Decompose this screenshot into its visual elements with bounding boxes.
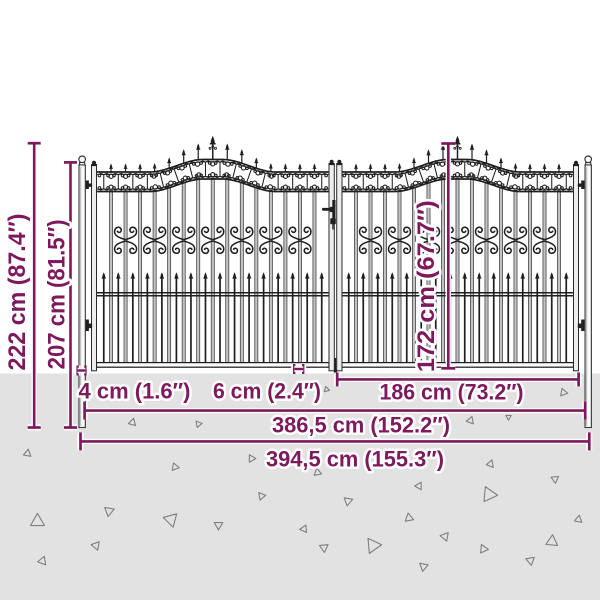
svg-text:386,5 cm (152.2″): 386,5 cm (152.2″) [272, 412, 450, 437]
svg-text:186 cm (73.2″): 186 cm (73.2″) [380, 380, 524, 405]
svg-text:207 cm (81.5″): 207 cm (81.5″) [43, 219, 70, 369]
svg-text:172 cm (67.7″): 172 cm (67.7″) [413, 200, 440, 372]
svg-text:222 cm (87.4″): 222 cm (87.4″) [4, 214, 31, 371]
svg-text:6 cm (2.4″): 6 cm (2.4″) [213, 379, 321, 404]
svg-text:4 cm (1.6″): 4 cm (1.6″) [79, 379, 191, 404]
svg-text:394,5 cm (155.3″): 394,5 cm (155.3″) [266, 446, 444, 471]
